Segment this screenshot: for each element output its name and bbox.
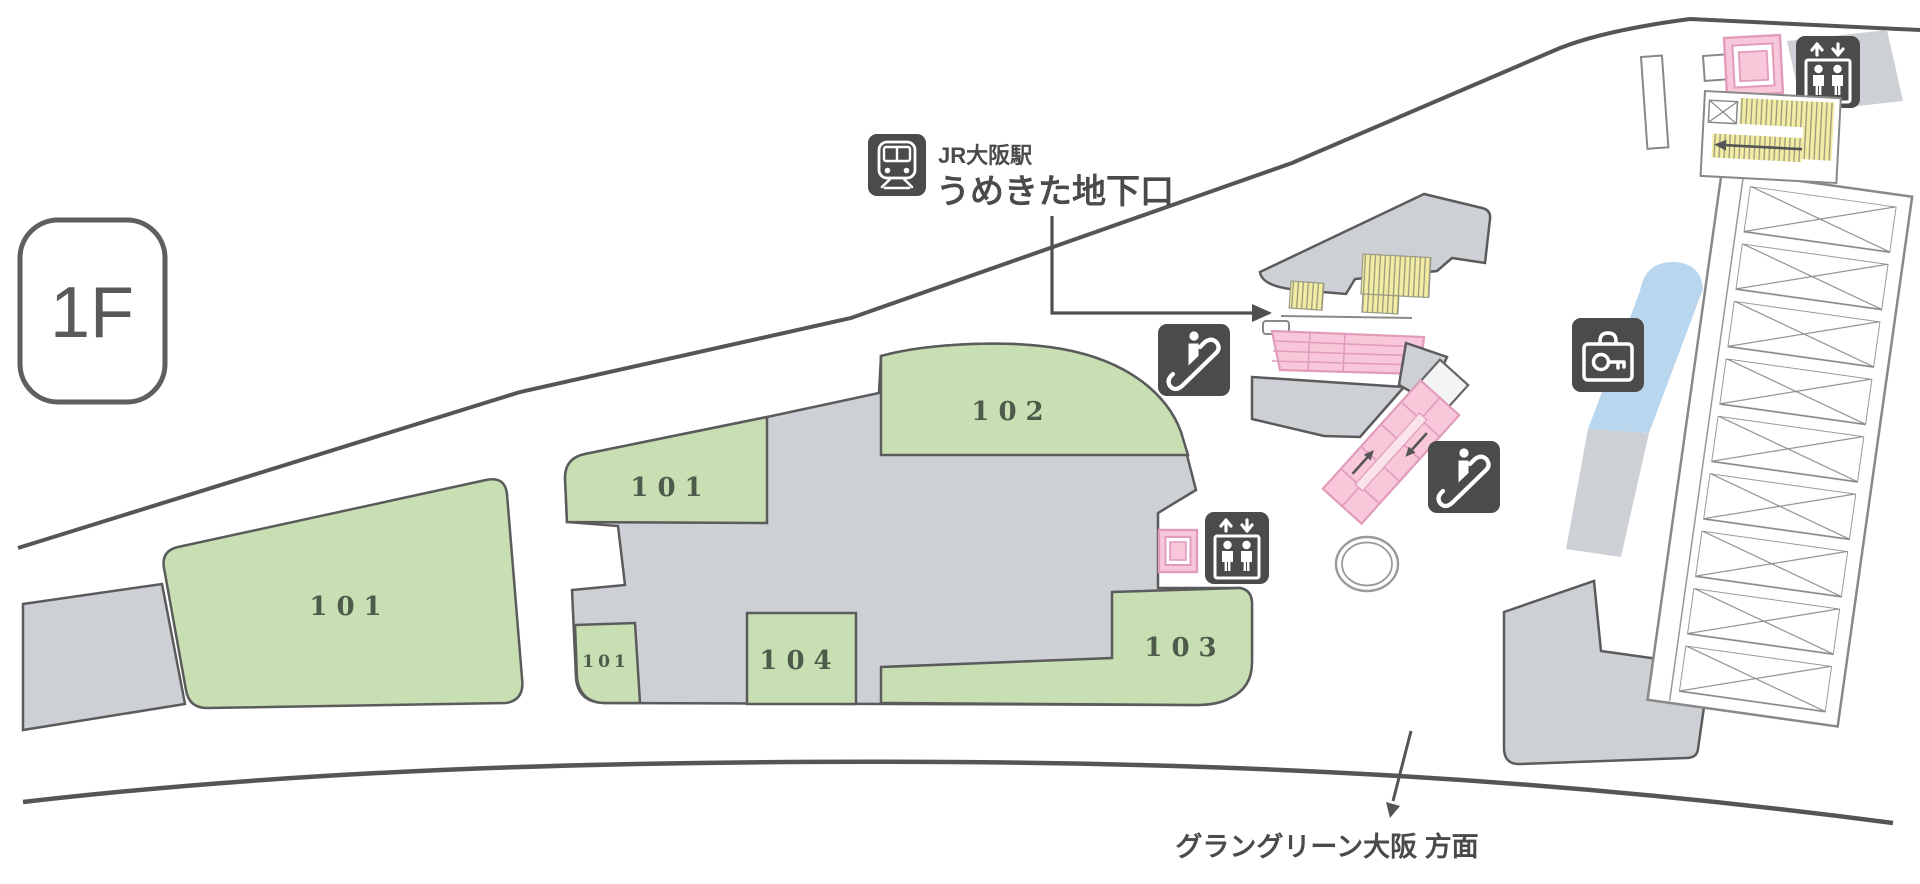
floor-map-canvas: 101 101 102 103 104 101 — [0, 0, 1920, 884]
direction-arrow — [1393, 731, 1411, 801]
zone-101-small-label: 101 — [582, 652, 630, 672]
boundary-road-bottom — [23, 762, 1893, 823]
truss-building — [1648, 170, 1913, 727]
floor-badge-label: 1F — [50, 273, 134, 353]
station-callout: JR大阪駅 うめきた地下口 — [868, 134, 1272, 322]
zone-102-label: 102 — [971, 397, 1052, 427]
zone-104-label: 104 — [759, 646, 840, 676]
zone-101-main-label: 101 — [309, 592, 390, 622]
topright-white-rect — [1641, 56, 1668, 149]
escalator-icon — [1428, 441, 1500, 513]
floor-map-1f: 101 101 102 103 104 101 — [0, 0, 1920, 884]
topright-cluster — [1641, 30, 1903, 183]
direction-arrowhead — [1386, 802, 1400, 818]
escalator-icon — [1158, 324, 1230, 396]
direction-label: グラングリーン大阪 方面 — [1175, 831, 1478, 862]
elevator-shaft-pink-top — [1724, 35, 1783, 96]
stairs-switchback — [1701, 91, 1841, 183]
elevator-shaft-pink-mid — [1159, 530, 1197, 572]
elevator-icon — [1205, 512, 1269, 584]
station-callout-arrow — [1052, 216, 1252, 313]
station-callout-arrowhead — [1252, 304, 1272, 322]
left-gray-walkway — [23, 584, 185, 730]
floor-badge: 1F — [20, 220, 165, 402]
stairs-yellow-large — [1360, 254, 1431, 315]
blue-corridor-gray-tail — [1566, 429, 1649, 557]
coin-locker-icon — [1572, 318, 1644, 392]
zone-103-label: 103 — [1144, 633, 1225, 663]
zone-101-mid-label: 101 — [630, 473, 711, 503]
zone-101-mid — [565, 417, 767, 523]
train-icon — [868, 134, 926, 196]
exit-edge-line — [1281, 316, 1412, 318]
direction-callout: グラングリーン大阪 方面 — [1175, 731, 1478, 862]
station-callout-exit: うめきた地下口 — [936, 173, 1174, 211]
stairs-yellow-small — [1289, 281, 1324, 310]
round-pillar — [1336, 537, 1398, 591]
station-callout-station: JR大阪駅 — [938, 143, 1032, 168]
